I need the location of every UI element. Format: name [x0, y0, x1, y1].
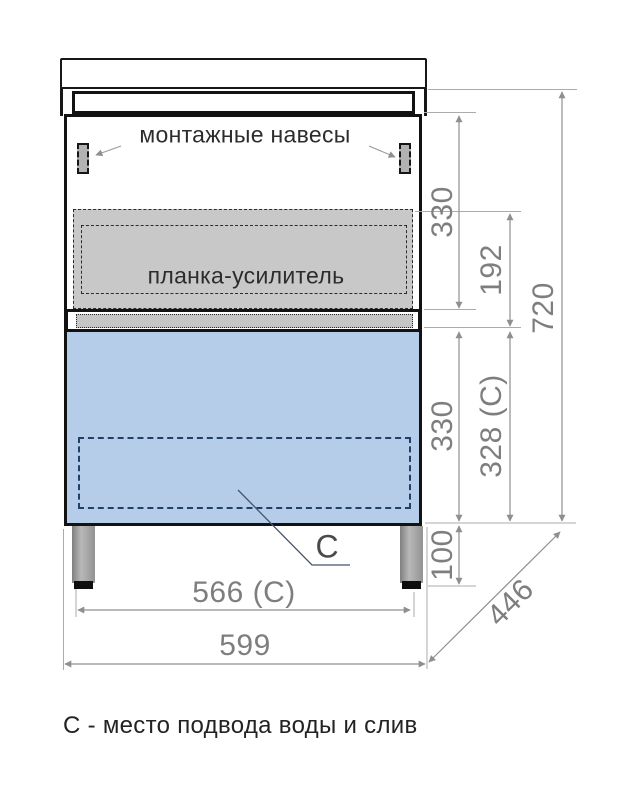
leg-foot-left [74, 581, 93, 589]
dim-drawer-opening-height: 328 (С) [475, 374, 509, 478]
mounting-bracket-left [77, 143, 89, 174]
countertop-edge-left [60, 88, 63, 116]
dim-lower-section-height: 330 [426, 400, 460, 452]
side-wall-left [64, 311, 68, 331]
mounting-bracket-right [399, 143, 411, 174]
dim-inner-width: 566 (С) [192, 576, 296, 610]
sink-apron [72, 91, 415, 114]
dim-bar-offset: 192 [475, 244, 509, 296]
legend-caption: С - место подвода воды и слив [63, 712, 418, 740]
divider-rail [76, 314, 413, 328]
water-supply-cutout-zone [78, 437, 411, 509]
dim-leg-height: 100 [426, 529, 460, 581]
leg-foot-right [402, 581, 421, 589]
dim-depth: 446 [481, 573, 542, 634]
dim-overall-width: 599 [219, 629, 271, 663]
dim-upper-section-height: 330 [426, 186, 460, 238]
dim-cabinet-height: 720 [527, 282, 561, 334]
mounting-brackets-label: монтажные навесы [139, 122, 350, 149]
connection-point-label: С [315, 529, 338, 566]
countertop-sink [60, 58, 427, 89]
reinforcement-bar-label: планка-усилитель [148, 263, 345, 290]
leg-left [72, 526, 95, 583]
vanity-technical-drawing: 330 192 720 330 328 (С) 100 446 566 (С) … [0, 0, 636, 800]
leg-right [400, 526, 423, 583]
countertop-edge-right [424, 88, 427, 116]
side-wall-right [418, 311, 422, 331]
